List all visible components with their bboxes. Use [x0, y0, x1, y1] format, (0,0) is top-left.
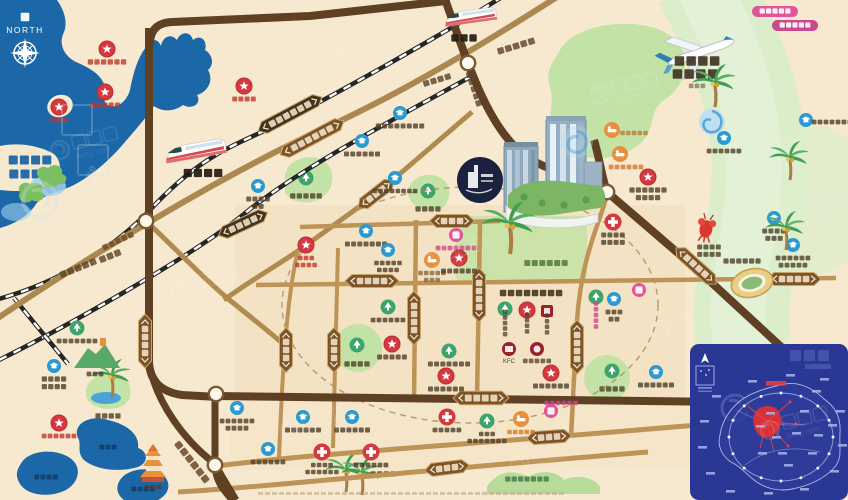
svg-text:KFC: KFC — [503, 359, 516, 365]
svg-text:NORTH: NORTH — [6, 25, 44, 35]
